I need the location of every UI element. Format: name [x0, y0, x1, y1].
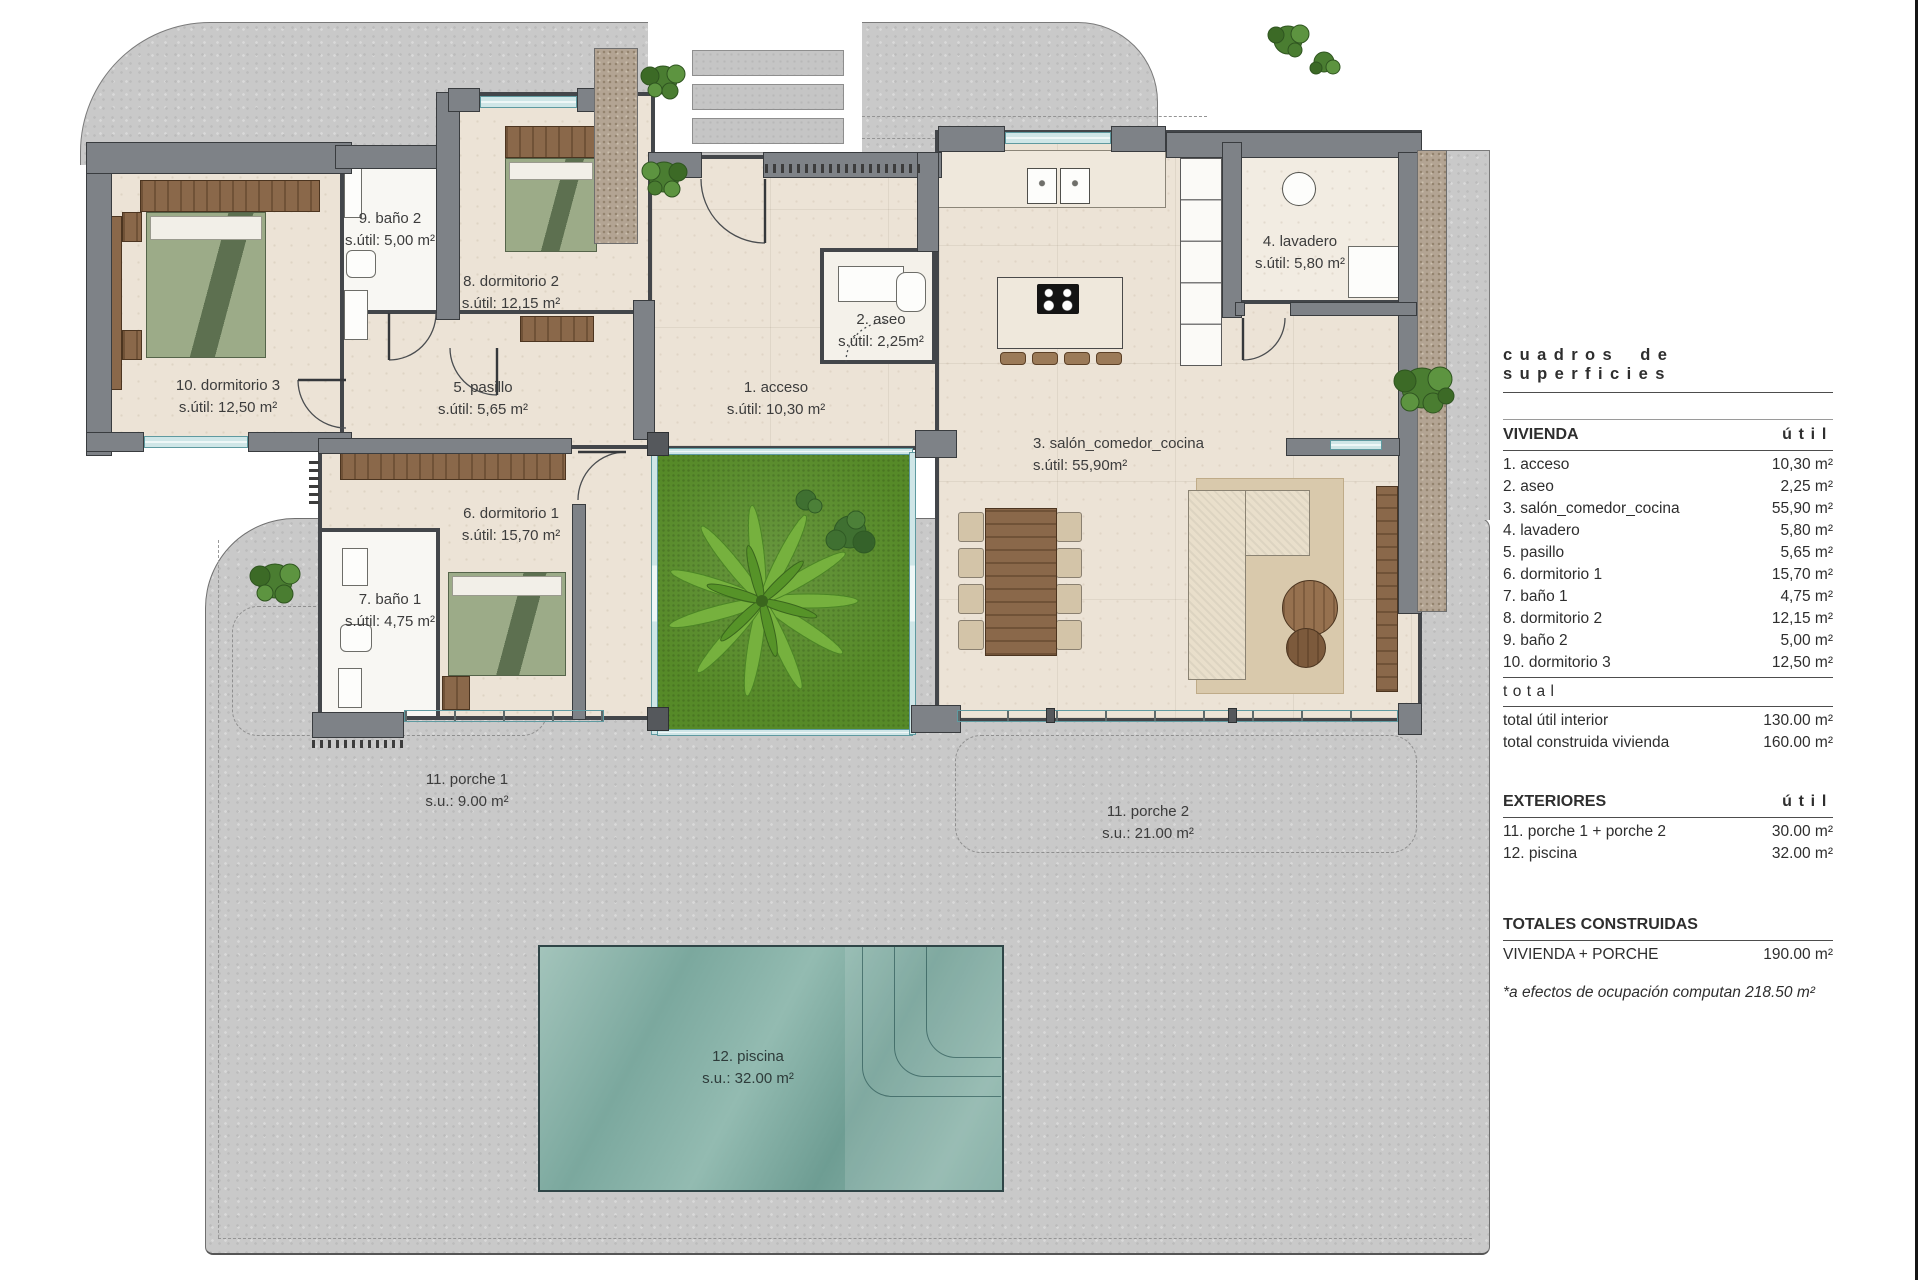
room-name: 7. baño 1	[345, 589, 435, 611]
room-area: s.útil: 10,30 m²	[727, 399, 825, 421]
row-label: 10. dormitorio 3	[1503, 654, 1611, 672]
tree-icon	[250, 564, 300, 603]
room-area: s.útil: 15,70 m²	[462, 525, 560, 547]
room-name: 11. porche 1	[425, 769, 508, 791]
bush-icon	[796, 490, 822, 513]
surface-table-panel: cuadros de superficies VIVIENDA útil 1. …	[1503, 346, 1833, 1002]
row-value: 12,15 m²	[1772, 610, 1833, 628]
room-area: s.útil: 12,50 m²	[176, 397, 280, 419]
row-value: 10,30 m²	[1772, 456, 1833, 474]
divider	[1503, 940, 1833, 941]
row-label: 2. aseo	[1503, 478, 1554, 496]
row-label: 12. piscina	[1503, 845, 1577, 863]
row-label: 3. salón_comedor_cocina	[1503, 500, 1680, 518]
row-value: 32.00 m²	[1772, 845, 1833, 863]
room-label-salon: 3. salón_comedor_cocina s.útil: 55,90m²	[1033, 433, 1204, 477]
room-name: 6. dormitorio 1	[462, 503, 560, 525]
row-value: 5,00 m²	[1780, 632, 1833, 650]
room-name: 8. dormitorio 2	[462, 271, 560, 293]
util-header: útil	[1782, 426, 1833, 444]
row-value: 190.00 m²	[1763, 946, 1833, 964]
room-name: 9. baño 2	[345, 208, 435, 230]
room-area: s.útil: 5,00 m²	[345, 230, 435, 252]
vivienda-header-row: VIVIENDA útil	[1503, 423, 1833, 447]
room-label-dormitorio2: 8. dormitorio 2 s.útil: 12,15 m²	[462, 271, 560, 315]
row-value: 160.00 m²	[1763, 734, 1833, 752]
room-area: s.útil: 55,90m²	[1033, 455, 1204, 477]
util-header: útil	[1782, 793, 1833, 811]
occupancy-footnote: *a efectos de ocupación computan 218.50 …	[1503, 984, 1833, 1002]
tree-icon	[642, 162, 687, 197]
tree-icon	[1394, 367, 1454, 413]
room-name: 12. piscina	[702, 1046, 794, 1068]
divider	[1503, 450, 1833, 451]
divider	[1503, 817, 1833, 818]
tree-icon	[641, 65, 685, 99]
room-label-acceso: 1. acceso s.útil: 10,30 m²	[727, 377, 825, 421]
totales-header-row: TOTALES CONSTRUIDAS	[1503, 913, 1833, 937]
row-value: 5,65 m²	[1780, 544, 1833, 562]
row-label: total útil interior	[1503, 712, 1608, 730]
label-porche2: 11. porche 2 s.u.: 21.00 m²	[1102, 801, 1194, 845]
row-value: 15,70 m²	[1772, 566, 1833, 584]
row-label: 5. pasillo	[1503, 544, 1564, 562]
row-value: 5,80 m²	[1780, 522, 1833, 540]
table-row: 5. pasillo5,65 m²	[1503, 542, 1833, 564]
room-area: s.útil: 4,75 m²	[345, 611, 435, 633]
row-value: 4,75 m²	[1780, 588, 1833, 606]
row-value: 55,90 m²	[1772, 500, 1833, 518]
table-row: total construida vivienda160.00 m²	[1503, 732, 1833, 754]
row-value: 2,25 m²	[1780, 478, 1833, 496]
room-area: s.u.: 32.00 m²	[702, 1068, 794, 1090]
table-row: 12. piscina32.00 m²	[1503, 843, 1833, 865]
room-name: 5. pasillo	[438, 377, 528, 399]
room-label-bano2: 9. baño 2 s.útil: 5,00 m²	[345, 208, 435, 252]
table-row: 1. acceso10,30 m²	[1503, 454, 1833, 476]
tree-icon	[1310, 52, 1340, 74]
room-label-dormitorio3: 10. dormitorio 3 s.útil: 12,50 m²	[176, 375, 280, 419]
table-row: 6. dormitorio 115,70 m²	[1503, 564, 1833, 586]
table-row: VIVIENDA + PORCHE190.00 m²	[1503, 944, 1833, 966]
divider	[1503, 706, 1833, 707]
table-row: 7. baño 14,75 m²	[1503, 586, 1833, 608]
room-area: s.útil: 5,80 m²	[1255, 253, 1345, 275]
table-row: 10. dormitorio 312,50 m²	[1503, 652, 1833, 674]
room-name: 3. salón_comedor_cocina	[1033, 433, 1204, 455]
room-name: 11. porche 2	[1102, 801, 1194, 823]
total-header-row: total	[1503, 681, 1833, 703]
room-label-aseo: 2. aseo s.útil: 2,25m²	[838, 309, 924, 353]
row-label: 7. baño 1	[1503, 588, 1568, 606]
bush-icon	[826, 511, 875, 553]
divider	[1503, 392, 1833, 393]
table-row: 11. porche 1 + porche 230.00 m²	[1503, 821, 1833, 843]
room-label-dormitorio1: 6. dormitorio 1 s.útil: 15,70 m²	[462, 503, 560, 547]
row-value: 130.00 m²	[1763, 712, 1833, 730]
room-area: s.útil: 5,65 m²	[438, 399, 528, 421]
room-label-bano1: 7. baño 1 s.útil: 4,75 m²	[345, 589, 435, 633]
table-row: total útil interior130.00 m²	[1503, 710, 1833, 732]
row-label: 8. dormitorio 2	[1503, 610, 1602, 628]
room-area: s.u.: 9.00 m²	[425, 791, 508, 813]
tree-icon	[1268, 25, 1309, 57]
row-label: total construida vivienda	[1503, 734, 1669, 752]
floor-plan-page: 1. acceso s.útil: 10,30 m² 2. aseo s.úti…	[0, 0, 1920, 1280]
row-label: 9. baño 2	[1503, 632, 1568, 650]
room-area: s.útil: 2,25m²	[838, 331, 924, 353]
label-piscina: 12. piscina s.u.: 32.00 m²	[702, 1046, 794, 1090]
table-row: 9. baño 25,00 m²	[1503, 630, 1833, 652]
room-area: s.útil: 12,15 m²	[462, 293, 560, 315]
table-row: 3. salón_comedor_cocina55,90 m²	[1503, 498, 1833, 520]
row-label: 11. porche 1 + porche 2	[1503, 823, 1666, 841]
table-row: 8. dormitorio 212,15 m²	[1503, 608, 1833, 630]
row-label: 1. acceso	[1503, 456, 1569, 474]
row-label: 6. dormitorio 1	[1503, 566, 1602, 584]
room-name: 2. aseo	[838, 309, 924, 331]
room-name: 10. dormitorio 3	[176, 375, 280, 397]
label-porche1: 11. porche 1 s.u.: 9.00 m²	[425, 769, 508, 813]
section-header: EXTERIORES	[1503, 793, 1606, 811]
table-row: 4. lavadero5,80 m²	[1503, 520, 1833, 542]
section-header: VIVIENDA	[1503, 426, 1579, 444]
divider	[1503, 419, 1833, 420]
row-label: 4. lavadero	[1503, 522, 1580, 540]
room-name: 1. acceso	[727, 377, 825, 399]
section-header: total	[1503, 683, 1559, 701]
panel-title: cuadros de superficies	[1503, 346, 1833, 384]
row-value: 30.00 m²	[1772, 823, 1833, 841]
row-value: 12,50 m²	[1772, 654, 1833, 672]
room-label-lavadero: 4. lavadero s.útil: 5,80 m²	[1255, 231, 1345, 275]
room-area: s.u.: 21.00 m²	[1102, 823, 1194, 845]
room-label-pasillo: 5. pasillo s.útil: 5,65 m²	[438, 377, 528, 421]
row-label: VIVIENDA + PORCHE	[1503, 946, 1658, 964]
divider	[1503, 677, 1833, 678]
exteriores-header-row: EXTERIORES útil	[1503, 790, 1833, 814]
table-row: 2. aseo2,25 m²	[1503, 476, 1833, 498]
room-name: 4. lavadero	[1255, 231, 1345, 253]
section-header: TOTALES CONSTRUIDAS	[1503, 916, 1698, 934]
